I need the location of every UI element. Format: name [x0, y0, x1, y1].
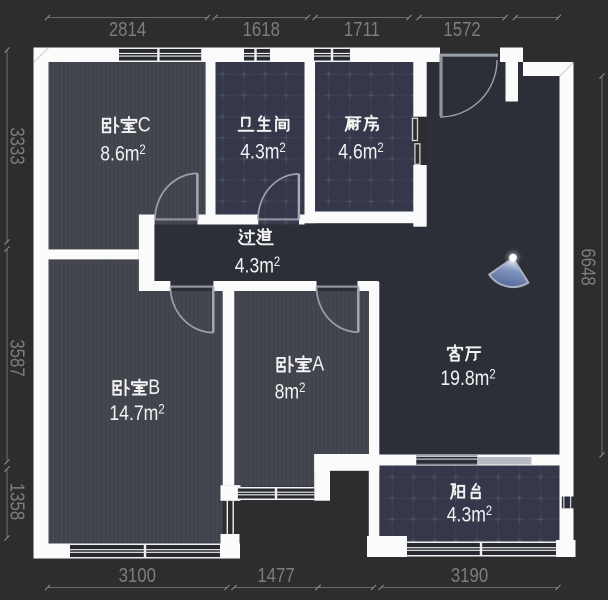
svg-text:8.6m2: 8.6m2	[100, 142, 146, 166]
svg-text:4.3m2: 4.3m2	[235, 254, 281, 278]
svg-text:C: C	[138, 113, 151, 137]
svg-text:2814: 2814	[109, 17, 146, 40]
svg-text:3333: 3333	[6, 127, 29, 164]
svg-text:1618: 1618	[243, 17, 280, 40]
svg-text:3587: 3587	[6, 339, 29, 376]
svg-text:4.3m2: 4.3m2	[447, 503, 493, 527]
svg-text:3190: 3190	[451, 564, 488, 587]
svg-text:3100: 3100	[119, 564, 156, 587]
svg-text:1711: 1711	[344, 17, 380, 40]
svg-text:6648: 6648	[577, 248, 600, 285]
svg-text:1572: 1572	[443, 17, 480, 40]
svg-text:1358: 1358	[6, 483, 29, 520]
svg-text:A: A	[312, 352, 324, 376]
svg-text:4.6m2: 4.6m2	[338, 140, 384, 164]
svg-text:4.3m2: 4.3m2	[240, 140, 286, 164]
svg-text:19.8m2: 19.8m2	[440, 367, 495, 391]
svg-text:14.7m2: 14.7m2	[109, 402, 164, 426]
svg-text:B: B	[148, 376, 160, 400]
svg-text:1477: 1477	[257, 564, 294, 587]
